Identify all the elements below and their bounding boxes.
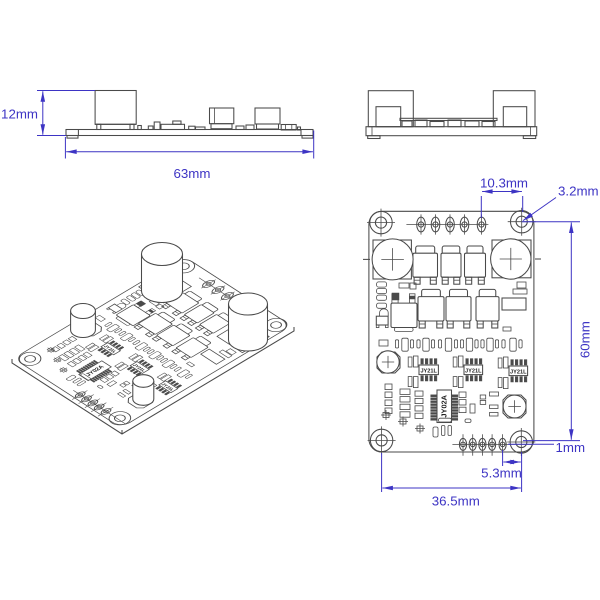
svg-text:5.3mm: 5.3mm bbox=[481, 466, 522, 481]
svg-text:1mm: 1mm bbox=[556, 440, 586, 455]
svg-text:3.2mm: 3.2mm bbox=[558, 184, 599, 199]
svg-text:63mm: 63mm bbox=[174, 166, 211, 181]
svg-text:10.3mm: 10.3mm bbox=[480, 175, 528, 190]
svg-text:12mm: 12mm bbox=[1, 106, 38, 121]
svg-text:60mm: 60mm bbox=[577, 321, 592, 358]
svg-text:36.5mm: 36.5mm bbox=[432, 493, 480, 508]
